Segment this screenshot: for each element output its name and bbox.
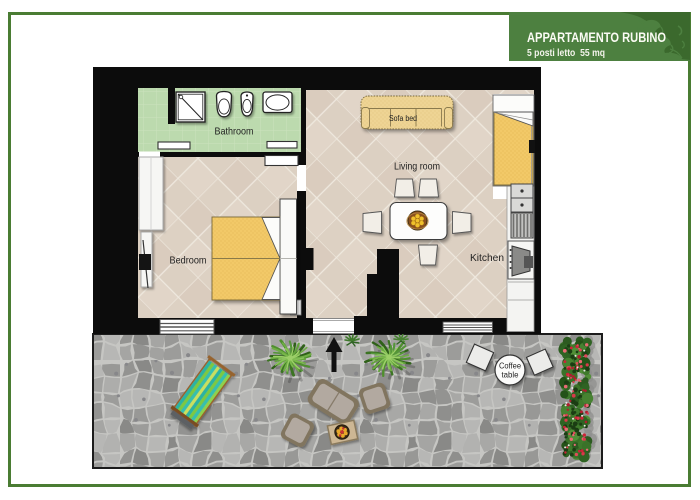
svg-text:Sofa bed: Sofa bed xyxy=(389,114,417,123)
svg-text:Coffee: Coffee xyxy=(499,362,522,371)
svg-text:table: table xyxy=(502,371,520,380)
svg-text:5 posti letto 55 mq: 5 posti letto 55 mq xyxy=(527,47,605,59)
svg-text:APPARTAMENTO RUBINO: APPARTAMENTO RUBINO xyxy=(527,30,666,45)
svg-text:Bedroom: Bedroom xyxy=(170,255,207,267)
svg-text:Living room: Living room xyxy=(394,161,440,173)
svg-text:Kitchen: Kitchen xyxy=(470,252,504,264)
svg-text:Bathroom: Bathroom xyxy=(215,126,254,138)
